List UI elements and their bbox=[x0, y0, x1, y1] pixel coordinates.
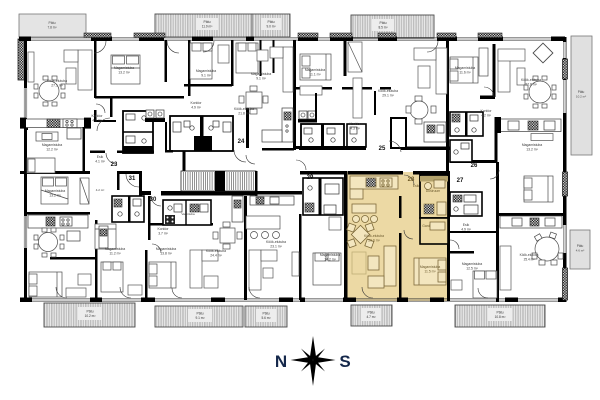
svg-text:Pätu: Pätu bbox=[204, 20, 211, 24]
svg-text:Magamistuba: Magamistuba bbox=[196, 69, 216, 73]
svg-text:24.4 m²: 24.4 m² bbox=[210, 254, 222, 258]
svg-text:Koridor: Koridor bbox=[350, 122, 362, 126]
svg-text:25.4 m²: 25.4 m² bbox=[524, 258, 535, 262]
svg-text:Pätu: Pätu bbox=[49, 21, 56, 25]
svg-text:10.2 m²: 10.2 m² bbox=[85, 314, 96, 318]
svg-text:Vannituba: Vannituba bbox=[181, 212, 195, 216]
svg-text:27.8 m²: 27.8 m² bbox=[525, 83, 537, 87]
svg-text:S: S bbox=[339, 352, 350, 371]
svg-text:4.2 m²: 4.2 m² bbox=[96, 188, 105, 192]
svg-text:10.2 m²: 10.2 m² bbox=[576, 95, 586, 99]
svg-text:31: 31 bbox=[129, 176, 136, 182]
svg-text:Köök-elutuba: Köök-elutuba bbox=[521, 78, 541, 82]
svg-text:4.9 m²: 4.9 m² bbox=[191, 106, 201, 110]
svg-text:Pätu: Pätu bbox=[368, 311, 375, 315]
svg-text:Köök-elutuba: Köök-elutuba bbox=[520, 253, 539, 257]
svg-text:9.0 m²: 9.0 m² bbox=[266, 25, 275, 29]
svg-text:23: 23 bbox=[111, 162, 118, 168]
svg-text:25: 25 bbox=[379, 146, 386, 152]
svg-text:9.1 m²: 9.1 m² bbox=[256, 77, 266, 81]
svg-text:Köök-elutuba: Köök-elutuba bbox=[378, 89, 398, 93]
svg-text:23.1 m²: 23.1 m² bbox=[270, 245, 282, 249]
svg-text:4.3 m²: 4.3 m² bbox=[92, 119, 102, 123]
svg-text:Köök-elutuba: Köök-elutuba bbox=[47, 79, 67, 83]
svg-text:4.1 m²: 4.1 m² bbox=[95, 160, 105, 164]
svg-text:4.9 m²: 4.9 m² bbox=[461, 228, 471, 232]
svg-text:4.7 m²: 4.7 m² bbox=[366, 315, 375, 319]
svg-text:Magamistuba: Magamistuba bbox=[45, 189, 65, 193]
svg-text:Pätu: Pätu bbox=[87, 310, 94, 314]
svg-text:11.5 m²: 11.5 m² bbox=[424, 270, 436, 274]
svg-text:13.2 m²: 13.2 m² bbox=[118, 71, 130, 75]
svg-text:4.3 m²: 4.3 m² bbox=[350, 127, 360, 131]
svg-text:10.8 m²: 10.8 m² bbox=[495, 315, 506, 319]
svg-text:Koridor: Koridor bbox=[191, 101, 203, 105]
svg-text:Magamistuba: Magamistuba bbox=[420, 265, 440, 269]
svg-text:13.8 m²: 13.8 m² bbox=[160, 252, 172, 256]
svg-text:Magamistuba: Magamistuba bbox=[320, 253, 340, 257]
svg-text:4.6 m²: 4.6 m² bbox=[576, 249, 585, 253]
svg-text:Köök-elutuba: Köök-elutuba bbox=[266, 240, 286, 244]
svg-text:Pätu: Pätu bbox=[577, 244, 584, 248]
svg-text:11.9 m²: 11.9 m² bbox=[202, 25, 213, 29]
svg-text:7.8 m²: 7.8 m² bbox=[47, 26, 56, 30]
svg-text:Magamistuba: Magamistuba bbox=[305, 68, 325, 72]
svg-text:N: N bbox=[275, 352, 287, 371]
svg-text:9.1 m²: 9.1 m² bbox=[201, 74, 211, 78]
svg-text:11.2 m²: 11.2 m² bbox=[109, 252, 121, 256]
svg-text:29.6 m²: 29.6 m² bbox=[368, 239, 380, 243]
svg-text:Köök-elutuba: Köök-elutuba bbox=[364, 234, 384, 238]
svg-text:Koridor: Koridor bbox=[481, 109, 493, 113]
svg-text:Magamistuba: Magamistuba bbox=[522, 143, 542, 147]
svg-text:Magamistuba: Magamistuba bbox=[42, 143, 62, 147]
svg-text:26: 26 bbox=[471, 163, 478, 169]
svg-text:9.1 m²: 9.1 m² bbox=[195, 316, 204, 320]
svg-text:Magamistuba: Magamistuba bbox=[156, 247, 176, 251]
svg-text:Magamistuba: Magamistuba bbox=[105, 247, 125, 251]
svg-text:Magamistuba: Magamistuba bbox=[462, 262, 482, 266]
svg-text:Magamistuba: Magamistuba bbox=[251, 72, 271, 76]
svg-text:Köök-elutuba: Köök-elutuba bbox=[234, 107, 254, 111]
svg-text:Duširuum: Duširuum bbox=[426, 189, 441, 193]
svg-text:12.5 m²: 12.5 m² bbox=[466, 267, 478, 271]
svg-text:Koridor: Koridor bbox=[92, 114, 104, 118]
svg-text:11.6 m²: 11.6 m² bbox=[459, 71, 471, 75]
svg-text:30: 30 bbox=[150, 197, 157, 203]
svg-text:14.2 m²: 14.2 m² bbox=[324, 258, 336, 262]
svg-text:Esik: Esik bbox=[97, 155, 104, 159]
svg-text:3.7 m²: 3.7 m² bbox=[158, 232, 168, 236]
svg-text:13.2 m²: 13.2 m² bbox=[526, 148, 538, 152]
svg-text:Pätu: Pätu bbox=[197, 312, 204, 316]
svg-text:5.6 m²: 5.6 m² bbox=[261, 316, 270, 320]
svg-text:12.2 m²: 12.2 m² bbox=[46, 148, 58, 152]
svg-text:27.1 m²: 27.1 m² bbox=[51, 84, 63, 88]
svg-text:Pätu: Pätu bbox=[263, 312, 270, 316]
svg-text:29: 29 bbox=[307, 175, 314, 181]
svg-text:Pätu: Pätu bbox=[380, 21, 387, 25]
svg-text:21.8 m²: 21.8 m² bbox=[238, 112, 250, 116]
svg-text:Köök-elutuba: Köök-elutuba bbox=[206, 249, 226, 253]
svg-text:Magamistuba: Magamistuba bbox=[455, 66, 475, 70]
svg-text:4.2 m²: 4.2 m² bbox=[481, 114, 491, 118]
svg-text:Koridor: Koridor bbox=[158, 227, 170, 231]
svg-text:Pätu: Pätu bbox=[578, 90, 585, 94]
svg-text:27: 27 bbox=[457, 178, 464, 184]
svg-text:Esik: Esik bbox=[463, 223, 470, 227]
svg-text:Gard: Gard bbox=[422, 224, 430, 228]
svg-text:Pätu: Pätu bbox=[497, 311, 504, 315]
svg-text:24: 24 bbox=[238, 139, 245, 145]
svg-text:Esik: Esik bbox=[413, 184, 420, 188]
svg-text:8.5 m²: 8.5 m² bbox=[378, 26, 387, 30]
svg-text:28: 28 bbox=[408, 177, 415, 183]
svg-text:11.1 m²: 11.1 m² bbox=[309, 73, 321, 77]
svg-text:Pätu: Pätu bbox=[268, 20, 275, 24]
svg-text:13.2 m²: 13.2 m² bbox=[49, 194, 61, 198]
svg-text:Magamistuba: Magamistuba bbox=[114, 66, 134, 70]
svg-text:29.1 m²: 29.1 m² bbox=[382, 94, 394, 98]
